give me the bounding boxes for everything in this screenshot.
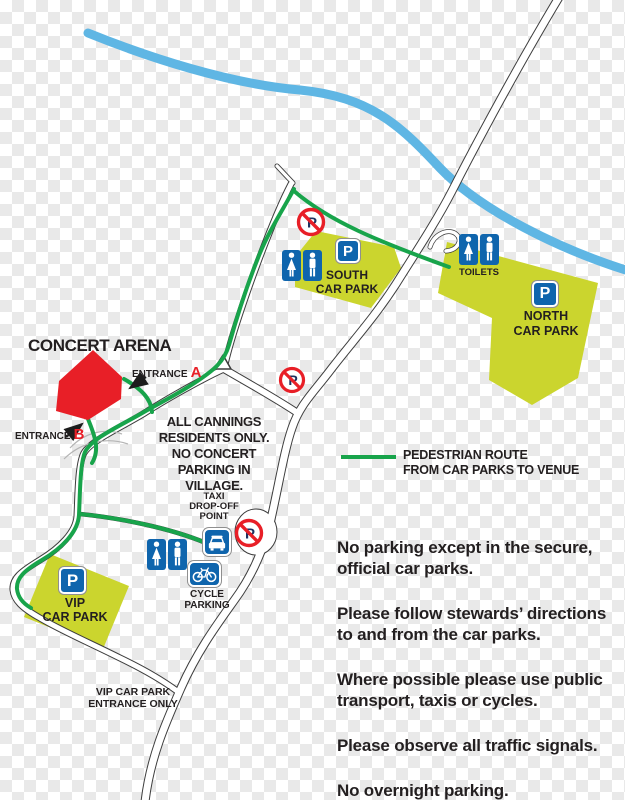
bicycle-icon [188, 561, 221, 587]
vip-car-park-label: VIP CAR PARK [35, 596, 115, 624]
taxi-icon [203, 528, 231, 556]
no-parking-icon: P [299, 210, 324, 235]
parking-sign-vip: P [59, 567, 86, 594]
female-icon [459, 234, 478, 265]
parking-letter: P [540, 285, 551, 303]
entrance-b-label: ENTRANCE B [15, 427, 84, 444]
notice-paragraph: Please follow stewards’ directions to an… [337, 603, 625, 645]
female-icon [147, 539, 166, 570]
notices-block: No parking except in the secure, officia… [337, 537, 625, 800]
concert-arena-label: CONCERT ARENA [28, 336, 171, 355]
vip-entrance-label: VIP CAR PARK ENTRANCE ONLY [73, 686, 193, 710]
river [88, 33, 625, 272]
legend-label: PEDESTRIAN ROUTE FROM CAR PARKS TO VENUE [403, 448, 579, 478]
notice-paragraph: No overnight parking. [337, 780, 625, 800]
toilets-label: TOILETS [444, 268, 514, 279]
toilets-icons-taxi-area [147, 539, 187, 570]
village-note: ALL CANNINGS RESIDENTS ONLY. NO CONCERT … [154, 414, 274, 494]
notice-paragraph: No parking except in the secure, officia… [337, 537, 625, 579]
notice-paragraph: Please observe all traffic signals. [337, 735, 625, 756]
north-car-park-label: NORTH CAR PARK [496, 309, 596, 338]
concert-arena-shape [56, 350, 122, 420]
parking-sign-south: P [336, 239, 360, 263]
toilets-icons-north [459, 234, 499, 265]
male-icon [480, 234, 499, 265]
parking-map: P P P P P P [0, 0, 625, 800]
taxi-drop-off-label: TAXI DROP-OFF POINT [174, 492, 254, 521]
parking-letter: P [67, 571, 78, 591]
south-car-park-label: SOUTH CAR PARK [297, 269, 397, 296]
notice-paragraph: Where possible please use public transpo… [337, 669, 625, 711]
cycle-parking-label: CYCLE PARKING [167, 589, 247, 611]
parking-sign-north: P [532, 281, 558, 307]
male-icon [168, 539, 187, 570]
entrance-a-label: ENTRANCE A [132, 365, 201, 382]
no-parking-icon: P [237, 521, 262, 546]
parking-letter: P [343, 243, 353, 260]
road-stub-surface [277, 166, 293, 183]
no-parking-icon: P [281, 369, 304, 392]
